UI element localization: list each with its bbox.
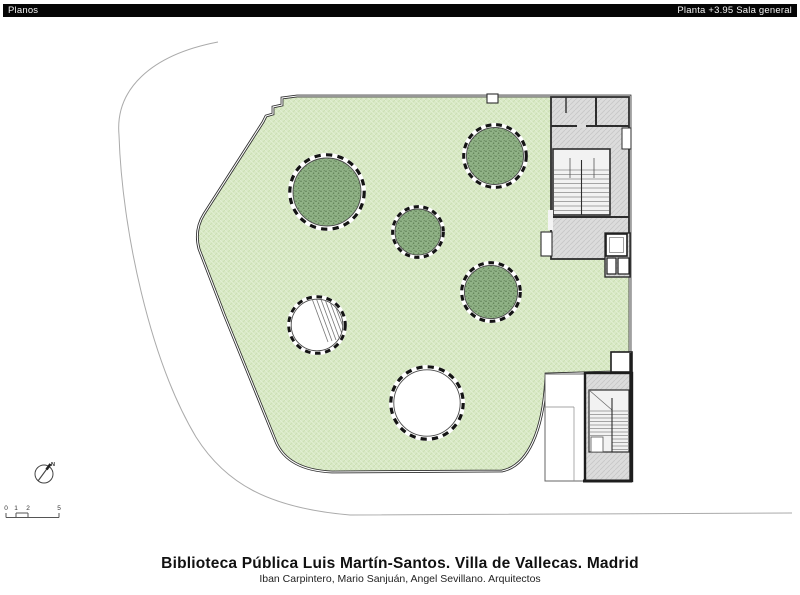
north-arrow: N (35, 462, 55, 483)
duct-box (541, 232, 552, 256)
scale-label-1: 1 (14, 505, 18, 512)
lower-stairwell (589, 390, 629, 452)
tree-courtyard-1 (288, 153, 366, 231)
project-title: Biblioteca Pública Luis Martín-Santos. V… (0, 554, 800, 573)
facade-recess (622, 128, 631, 149)
door-opening (548, 210, 553, 230)
elevator-shafts (606, 234, 629, 274)
facade-notch (487, 94, 498, 103)
scale-label-5: 5 (57, 505, 61, 512)
drawing-sheet: { "header": { "left": "Planos", "right":… (0, 0, 800, 595)
upper-service-core (541, 97, 631, 277)
tree-courtyard-3 (391, 205, 445, 259)
floor-plan-canvas: N 0 1 2 5 (0, 0, 800, 595)
scale-label-0: 0 (4, 505, 8, 512)
skylight-circle (389, 365, 465, 441)
tree-courtyard-2 (462, 123, 528, 189)
scale-label-2: 2 (26, 505, 30, 512)
roof-hatch-box (611, 352, 632, 372)
architects-credit: Iban Carpintero, Mario Sanjuán, Angel Se… (0, 573, 800, 586)
title-block: Biblioteca Pública Luis Martín-Santos. V… (0, 554, 800, 586)
scale-bar (6, 513, 59, 518)
lower-terrace (545, 374, 585, 481)
upper-stairwell (553, 149, 610, 215)
tree-courtyard-4 (460, 261, 522, 323)
north-label: N (51, 462, 55, 468)
scale-bar-labels: 0 1 2 5 (4, 505, 61, 512)
